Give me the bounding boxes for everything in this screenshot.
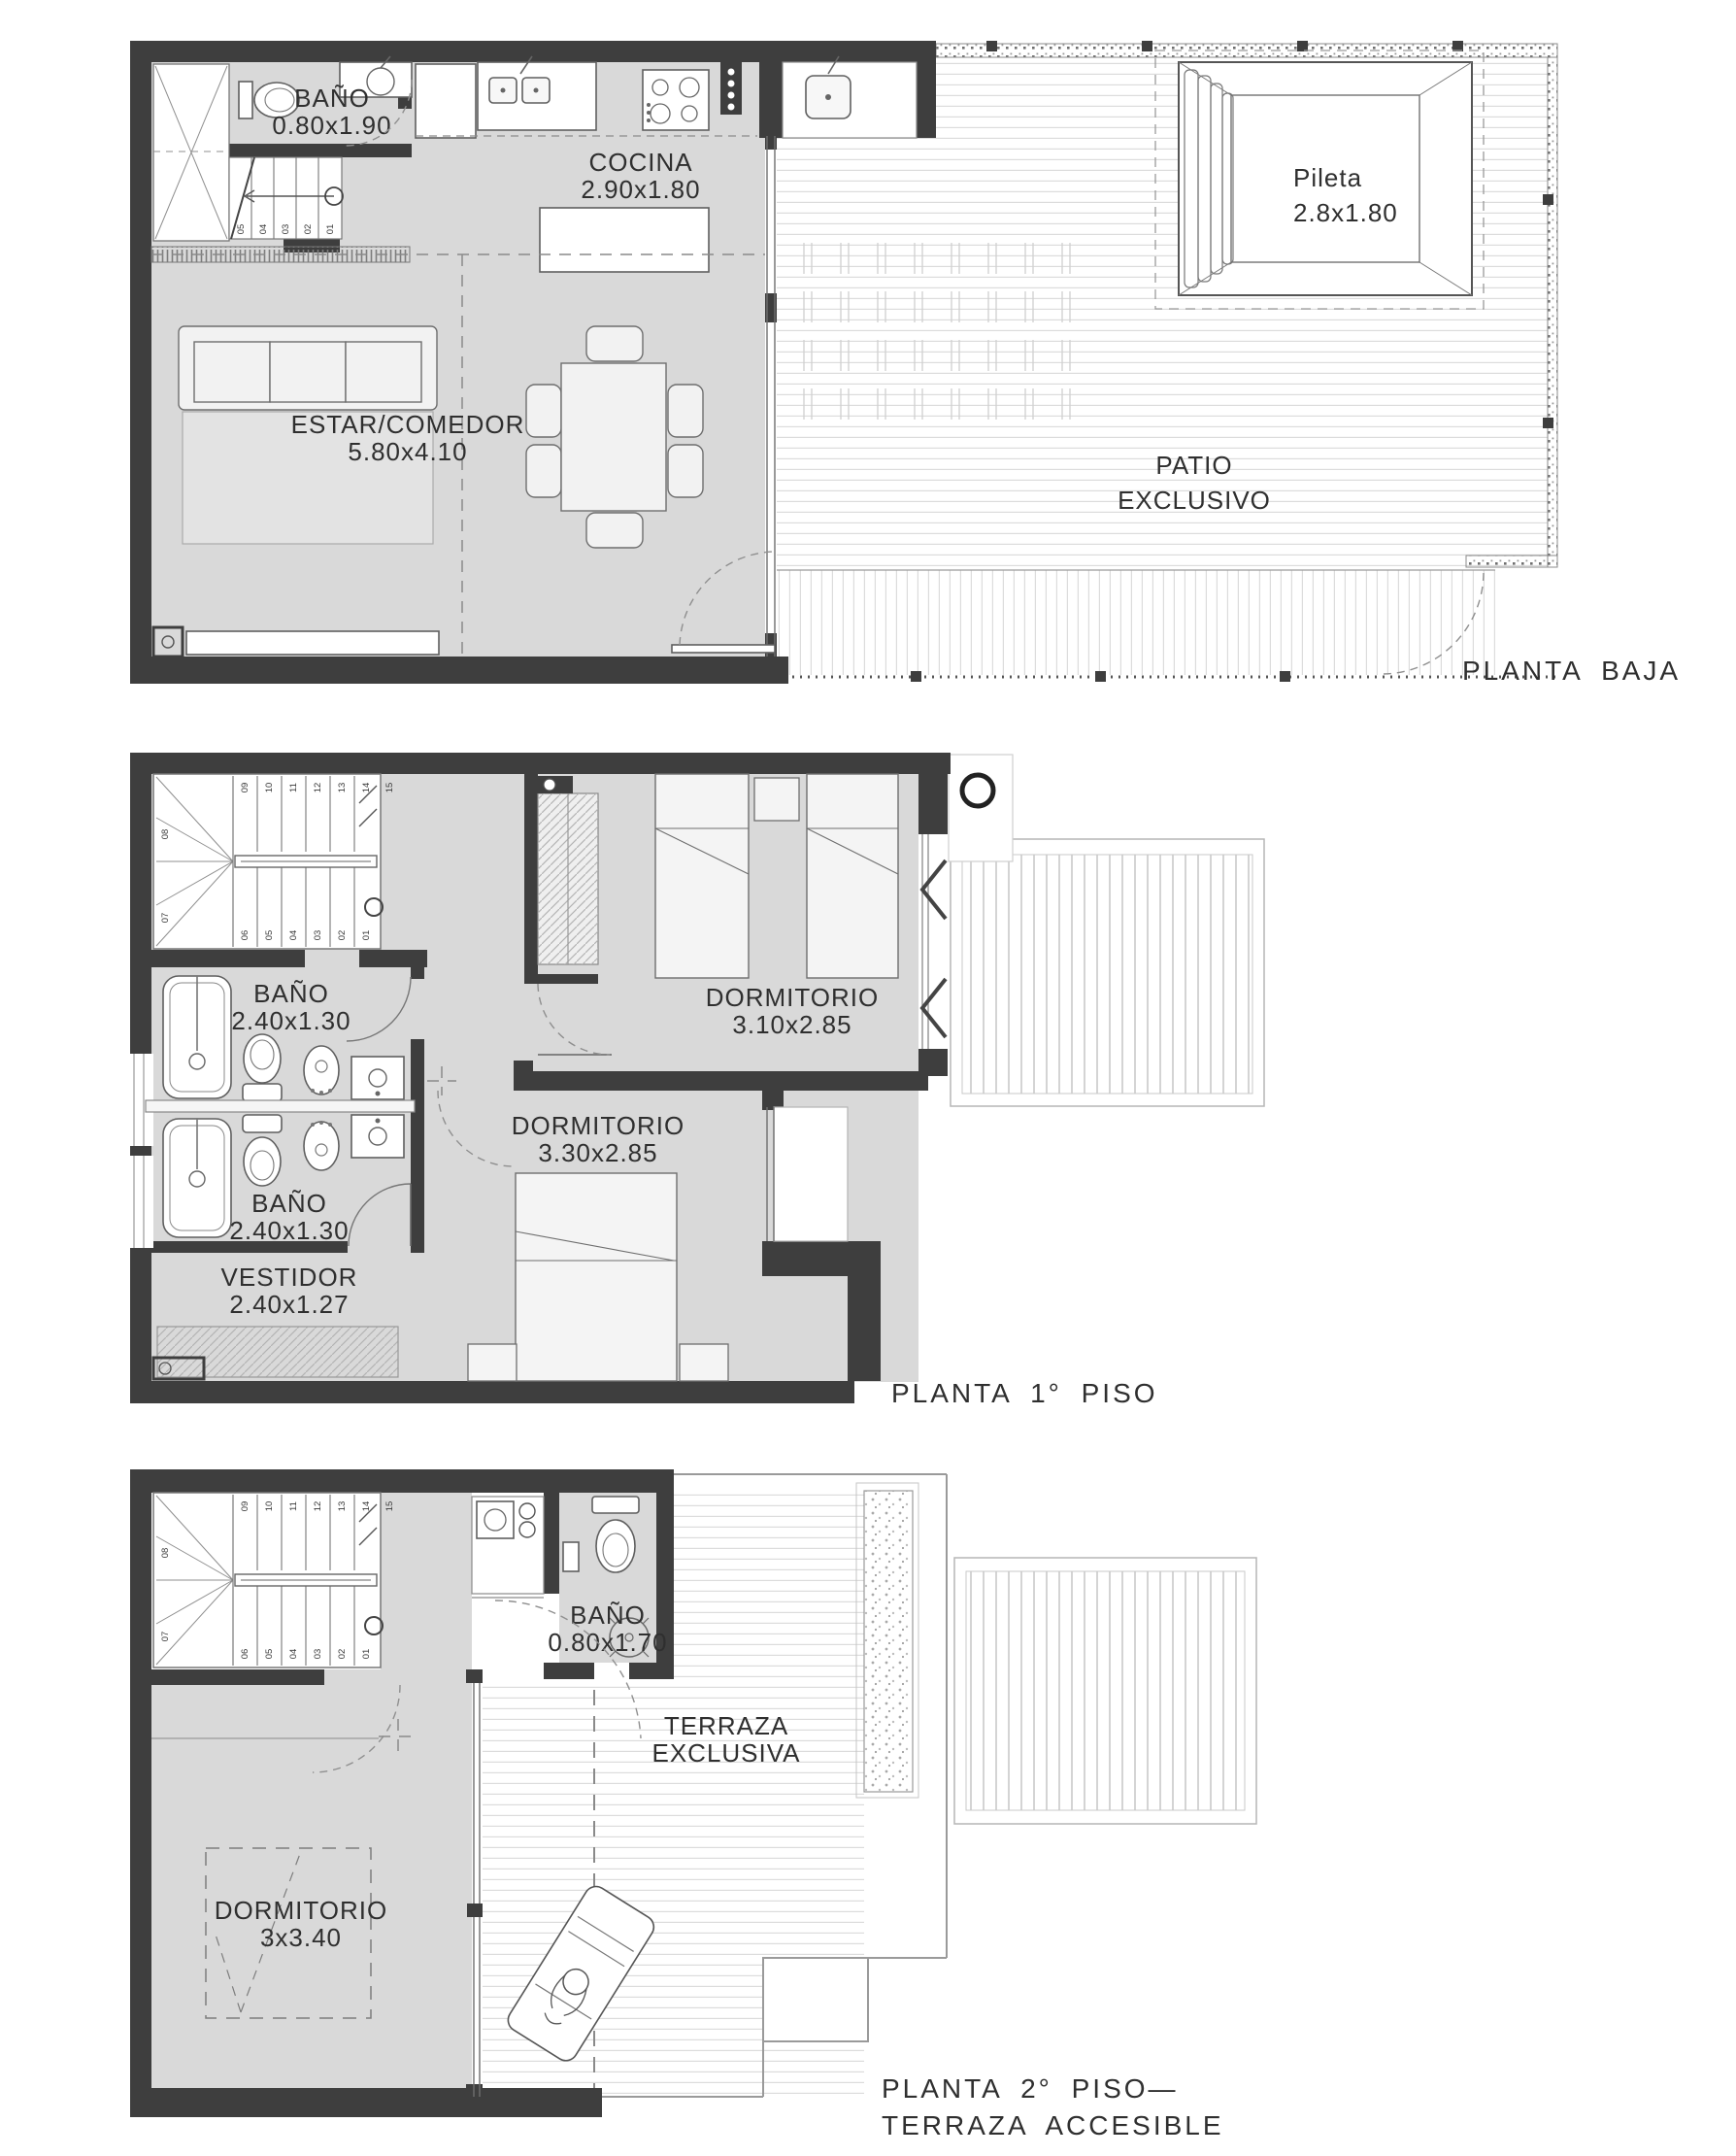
nightstand-icon (754, 778, 799, 821)
single-bed-icon (807, 774, 898, 978)
stair-num: 01 (325, 224, 336, 235)
room-dims: 2.40x1.30 (229, 1216, 349, 1245)
balcony-deck (951, 839, 1264, 1106)
gravel-strip (864, 1491, 913, 1792)
room-dims: 3x3.40 (260, 1923, 342, 1952)
stair-num: 04 (258, 224, 269, 235)
laundry-niche (472, 1497, 544, 1598)
floor-planta-2-piso: BAÑO 0.80x1.70 DORMITORIO 3x3.40 TERRAZA… (130, 1469, 1256, 2140)
room-dims: 2.90x1.80 (581, 175, 700, 204)
washer-icon (477, 1501, 514, 1538)
room-dims: 3.10x2.85 (732, 1010, 851, 1039)
outdoor-sink-alcove (783, 56, 917, 138)
room-dims: 5.80x4.10 (348, 437, 467, 466)
terraza-label-1: TERRAZA (664, 1711, 788, 1740)
balcony-niche (767, 1107, 848, 1241)
kitchen-island (540, 208, 709, 272)
room-label: DORMITORIO (512, 1111, 685, 1140)
bathtub-icon (163, 976, 231, 1098)
room-label: BAÑO (570, 1600, 646, 1630)
stove-icon (643, 70, 709, 130)
room-label: DORMITORIO (706, 983, 880, 1012)
room-dims: 0.80x1.70 (548, 1628, 667, 1657)
column-symbol (962, 775, 993, 806)
terraza-label-2: EXCLUSIVA (651, 1738, 800, 1768)
plan-drawing: 09 10 11 12 13 14 15 08 07 06 05 04 03 0… (0, 0, 1736, 2156)
floor-title-2p-line2: TERRAZA ACCESIBLE (882, 2110, 1224, 2140)
floor-title-pb: PLANTA BAJA (1462, 656, 1681, 686)
bench (186, 631, 439, 655)
oven-tower-icon (720, 62, 742, 115)
vanity-icon (351, 1057, 404, 1099)
room-label: BAÑO (251, 1189, 327, 1218)
shelf-icon (563, 1542, 579, 1571)
room-label: VESTIDOR (221, 1263, 358, 1292)
room-label: BAÑO (294, 84, 370, 113)
patio-label-2: EXCLUSIVO (1118, 486, 1271, 515)
sofa-icon (179, 326, 437, 410)
floor-plan-sheet: 09 10 11 12 13 14 15 08 07 06 05 04 03 0… (0, 0, 1736, 2156)
pool-dims: 2.8x1.80 (1293, 198, 1398, 227)
room-dims: 3.30x2.85 (538, 1138, 657, 1167)
toilet-icon (243, 1115, 282, 1186)
vanity-icon (351, 1115, 404, 1158)
bidet-icon (304, 1046, 339, 1095)
patio-slat-deck (777, 570, 1495, 675)
nightstand-icon (680, 1344, 728, 1381)
room-dims: 2.40x1.30 (231, 1006, 351, 1035)
stair-num: 02 (303, 224, 314, 235)
pergola-deck (954, 1558, 1256, 1824)
nightstand-icon (468, 1344, 517, 1381)
double-bed-icon (516, 1173, 677, 1381)
room-label: DORMITORIO (215, 1896, 388, 1925)
stair-num: 03 (281, 224, 291, 235)
toilet-icon (592, 1497, 639, 1572)
floor-title-1p: PLANTA 1° PISO (891, 1378, 1158, 1408)
bathtub-icon (163, 1119, 231, 1237)
floor-planta-baja: Pileta 2.8x1.80 05 (130, 41, 1681, 686)
floor-planta-1-piso: BAÑO 2.40x1.30 (124, 753, 1264, 1408)
floor-title-2p-line1: PLANTA 2° PISO— (882, 2073, 1179, 2104)
closet-hatch (157, 1327, 398, 1377)
window-opening (922, 834, 946, 1049)
stair-num: 05 (236, 224, 247, 235)
bidet-icon (304, 1121, 339, 1170)
room-label: BAÑO (253, 979, 329, 1008)
toilet-icon (243, 1034, 282, 1101)
room-label: COCINA (588, 148, 692, 177)
patio-label-1: PATIO (1155, 451, 1232, 480)
fridge-icon (416, 64, 476, 138)
bath-divider (146, 1100, 415, 1112)
pool-label: Pileta (1293, 163, 1362, 192)
pool: Pileta 2.8x1.80 (1155, 51, 1484, 309)
room-label: ESTAR/COMEDOR (291, 410, 525, 439)
room-dims: 2.40x1.27 (229, 1290, 349, 1319)
single-bed-icon (655, 774, 749, 978)
room-dims: 0.80x1.90 (272, 111, 391, 140)
